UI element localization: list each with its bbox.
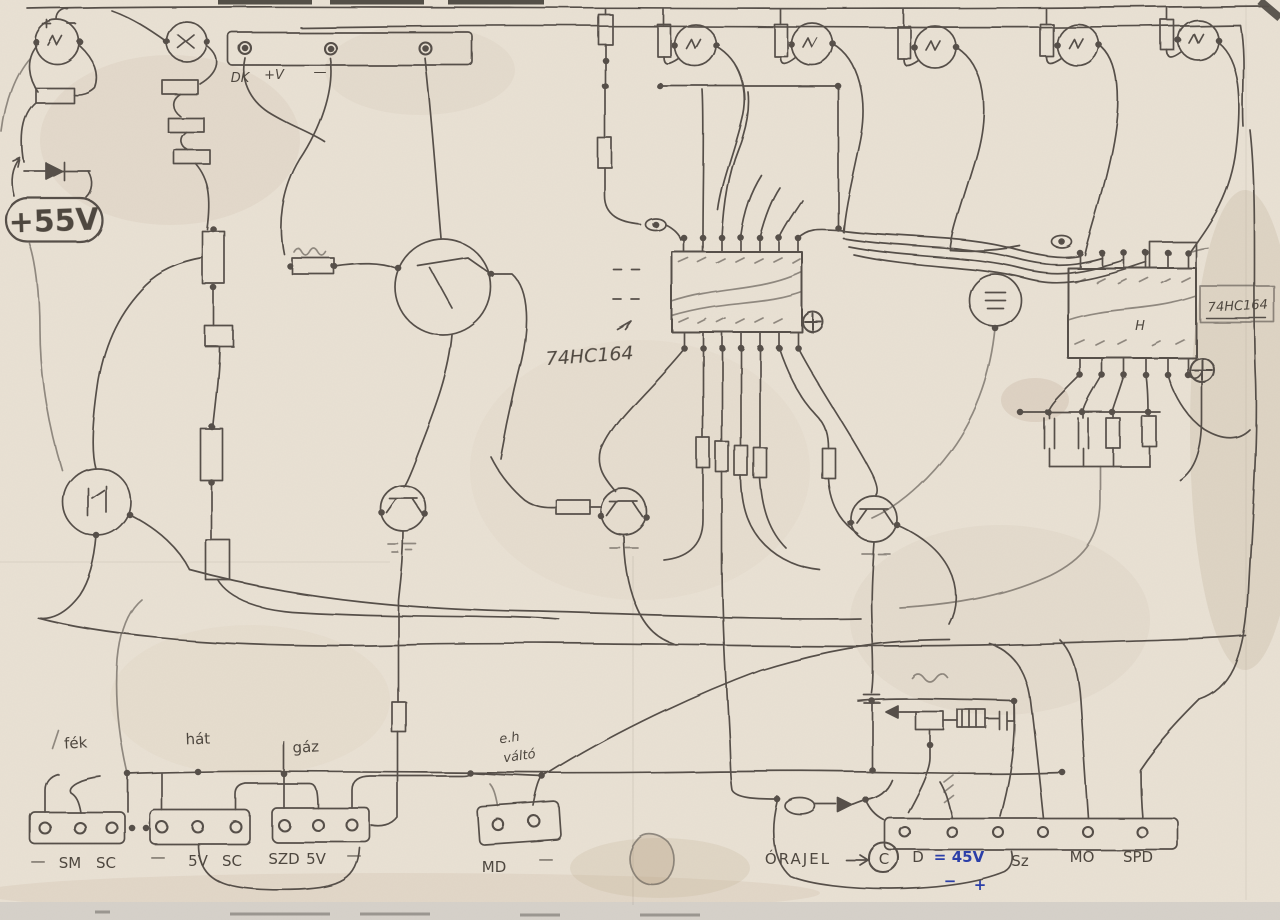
scanned-schematic-page: +55V DK +V — 74HC164 74HC164 H fék hát g… bbox=[0, 0, 1280, 920]
ink-blot bbox=[629, 834, 674, 885]
dk-label: DK bbox=[231, 71, 251, 86]
terminal-label: SC bbox=[222, 852, 242, 870]
terminal-label: 5V bbox=[188, 852, 209, 870]
orajel-label: ÓRAJEL bbox=[765, 849, 831, 868]
note-brake: fék bbox=[64, 733, 88, 752]
md-minus-label: — bbox=[539, 850, 554, 868]
terminal-label: — bbox=[347, 846, 362, 864]
spd-label: SPD bbox=[1123, 848, 1153, 866]
top-minus-label: — bbox=[314, 65, 327, 80]
supply-label: +55V bbox=[8, 202, 100, 240]
note-reverse: hát bbox=[185, 730, 210, 749]
ic2-part-label: 74HC164 bbox=[1207, 297, 1268, 315]
note-switch-1: e.h bbox=[498, 730, 520, 748]
terminal-label: SZD bbox=[268, 850, 299, 868]
blue-plus: + bbox=[974, 876, 987, 894]
mo-label: MO bbox=[1070, 848, 1095, 866]
d-label: D bbox=[912, 848, 924, 866]
terminal-label: — bbox=[31, 852, 46, 870]
eq-mark: = bbox=[934, 848, 947, 866]
sz-label: Sz bbox=[1011, 852, 1029, 870]
md-label: MD bbox=[482, 858, 507, 876]
terminal-label: SC bbox=[96, 854, 116, 872]
note-throttle: gáz bbox=[292, 737, 320, 756]
voltage-label: 45V bbox=[952, 848, 985, 866]
plus-v-label: +V bbox=[264, 68, 285, 83]
terminal-label: — bbox=[151, 848, 166, 866]
blue-minus: − bbox=[944, 872, 957, 890]
circled-c-label: C bbox=[879, 850, 889, 868]
ic2-pin-h: H bbox=[1135, 319, 1145, 334]
terminal-label: 5V bbox=[306, 850, 327, 868]
schematic-drawing: +55V DK +V — 74HC164 74HC164 H fék hát g… bbox=[0, 0, 1280, 920]
terminal-label: SM bbox=[59, 854, 81, 872]
paper-stains bbox=[0, 0, 1280, 920]
